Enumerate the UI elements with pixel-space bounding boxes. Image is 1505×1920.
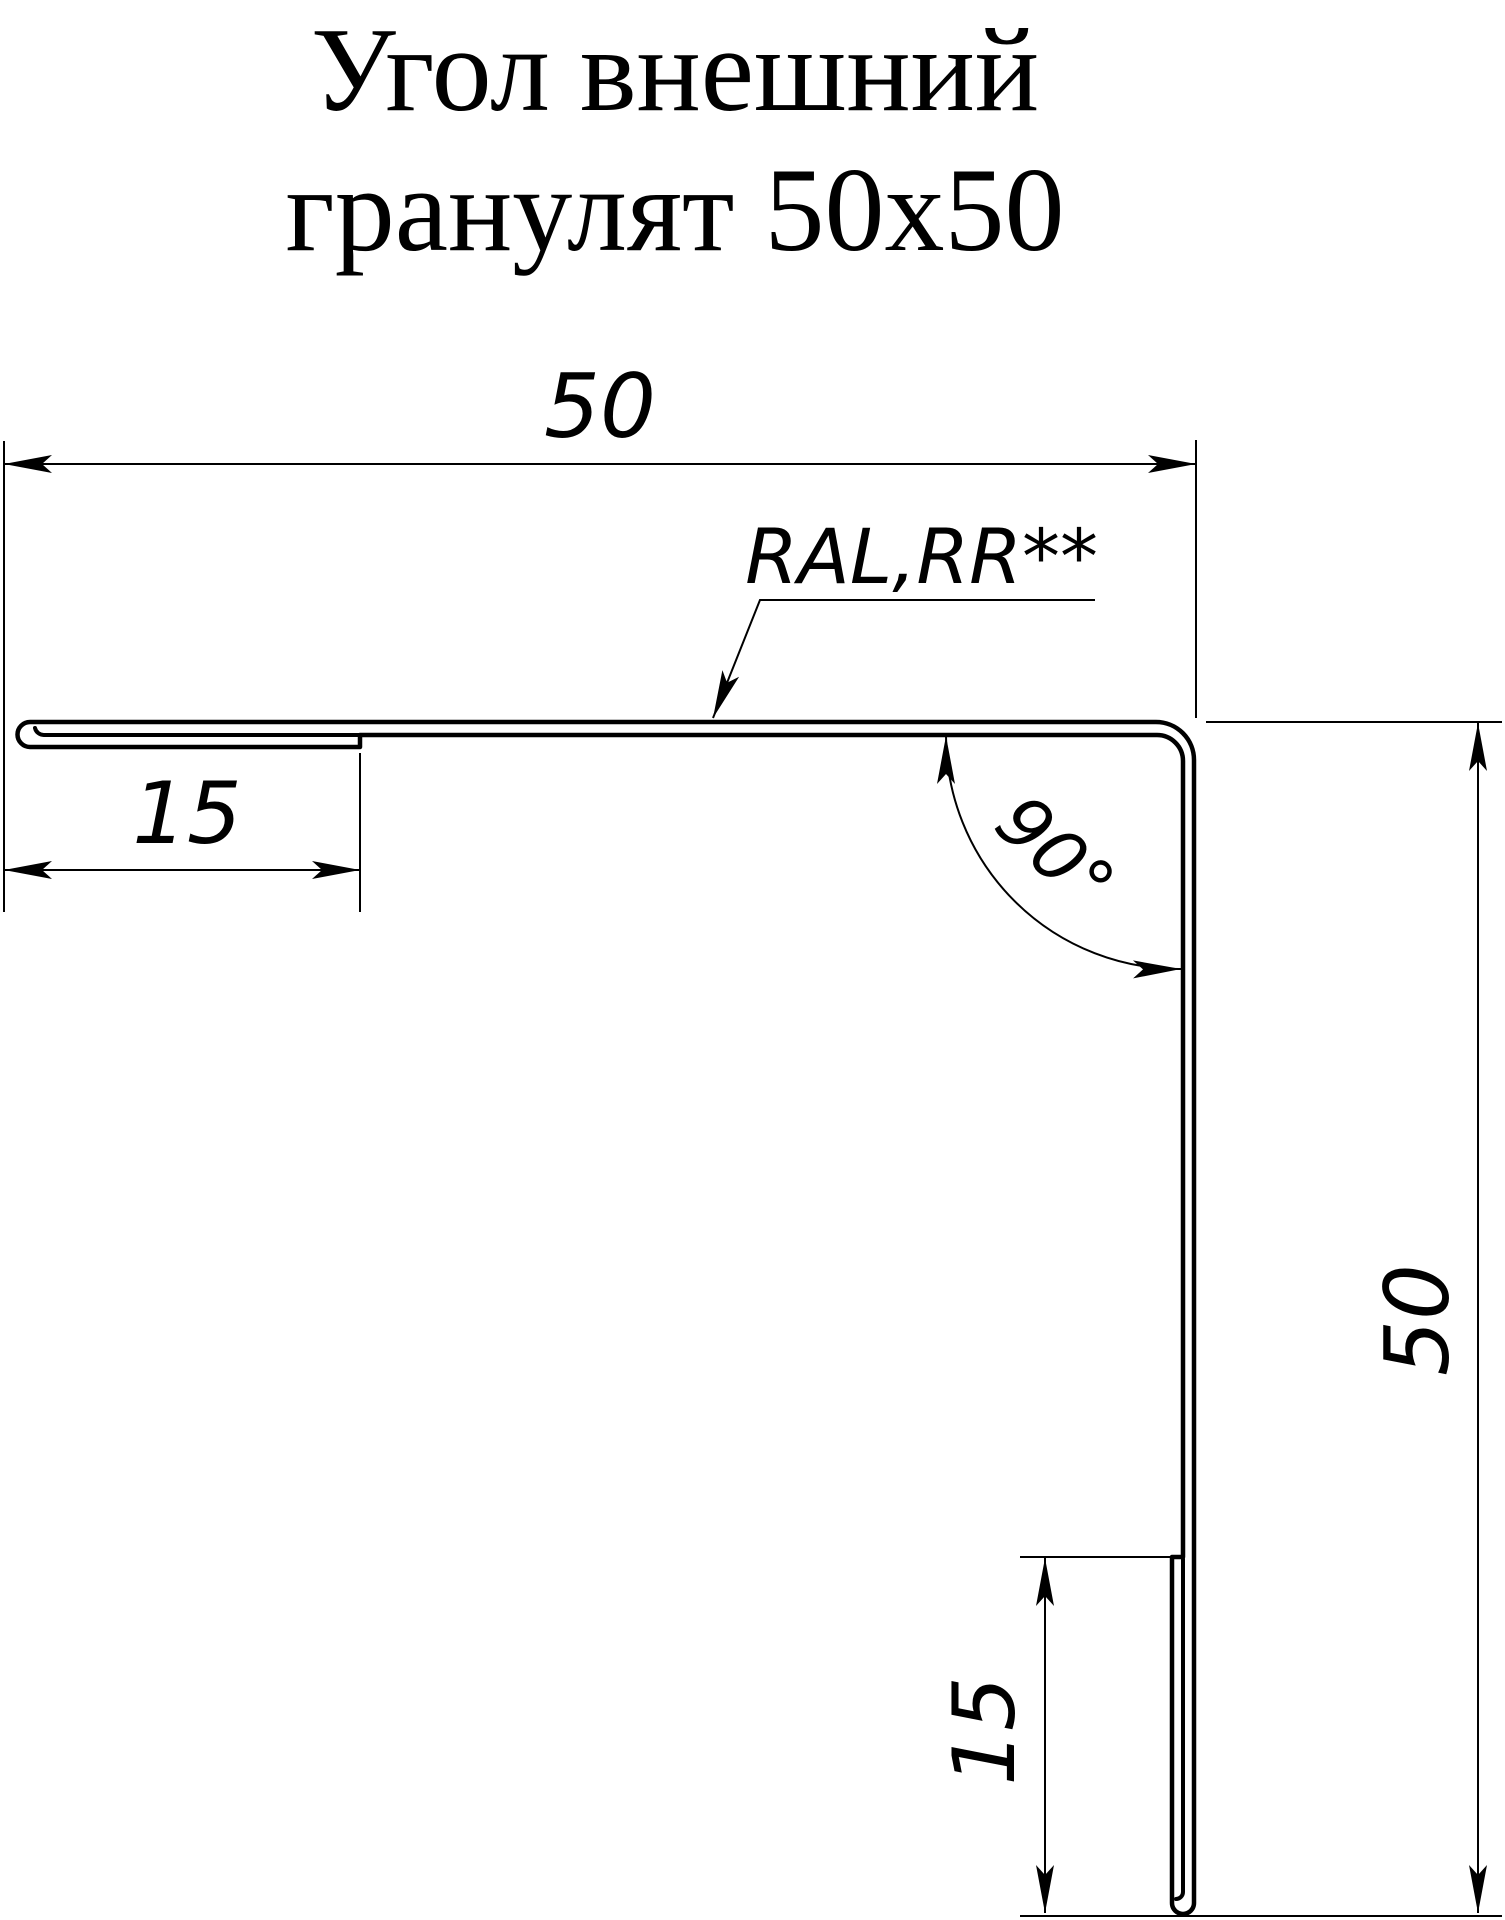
left-hem-dimension-text: 15 (132, 764, 241, 864)
technical-drawing-canvas: 50 15 50 15 90° RAL,RR** (0, 0, 1505, 1920)
drawing-page: Угол внешний гранулят 50x50 50 (0, 0, 1505, 1920)
top-width-dimension-text: 50 (544, 355, 656, 458)
material-callout-text: RAL,RR** (745, 512, 1098, 601)
bottom-hem-dimension-text: 15 (935, 1676, 1035, 1785)
corner-angle-text: 90° (980, 778, 1131, 926)
right-height-dimension-text: 50 (1366, 1264, 1469, 1376)
callout-leader-line (713, 600, 1095, 718)
